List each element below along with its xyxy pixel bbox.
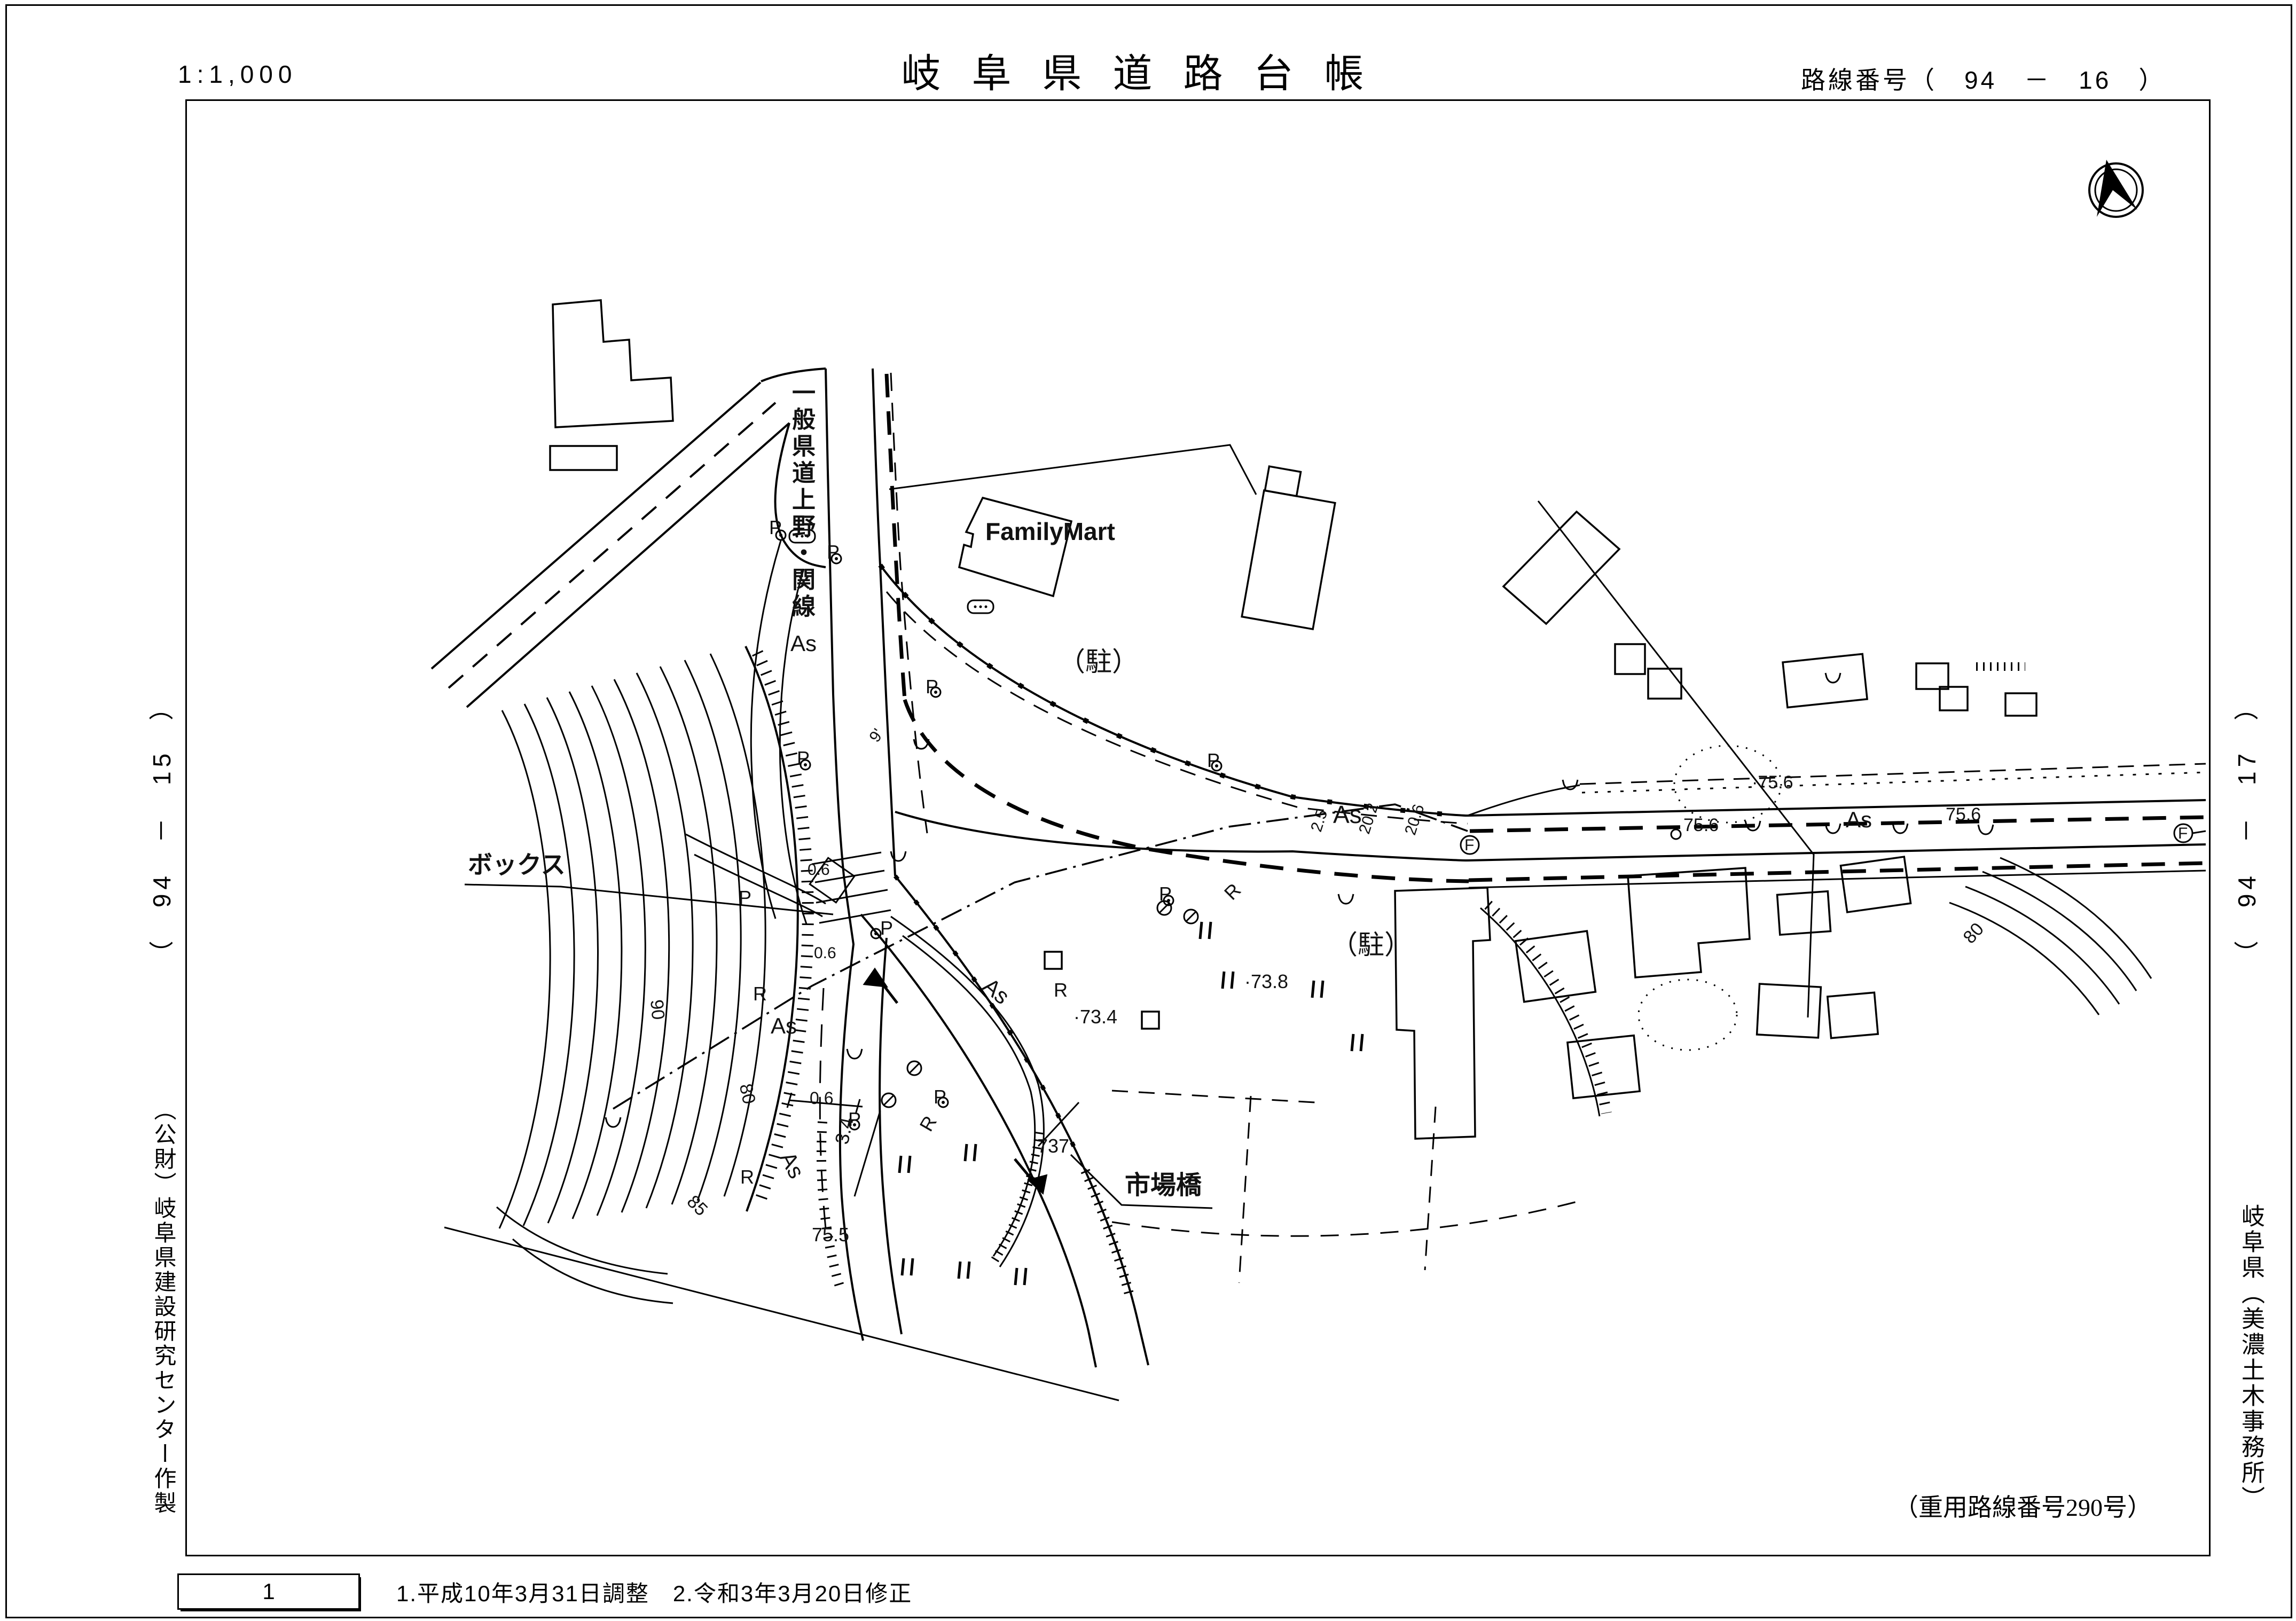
overlap-route-note: （重用路線番号290号） <box>1894 1488 2152 1523</box>
revision-note: 1.平成10年3月31日調整 2.令和3年3月20日修正 <box>396 1576 912 1608</box>
map-drawing <box>0 0 2296 1621</box>
road-ledger-sheet: { "page": { "scale": "1:1,000", "title":… <box>0 0 2296 1621</box>
page-number-box: 1 <box>177 1573 360 1610</box>
road-name-label: 一般県道上野・関線 <box>784 380 818 621</box>
north-arrow-icon <box>2089 160 2143 217</box>
page-number: 1 <box>262 1579 275 1604</box>
